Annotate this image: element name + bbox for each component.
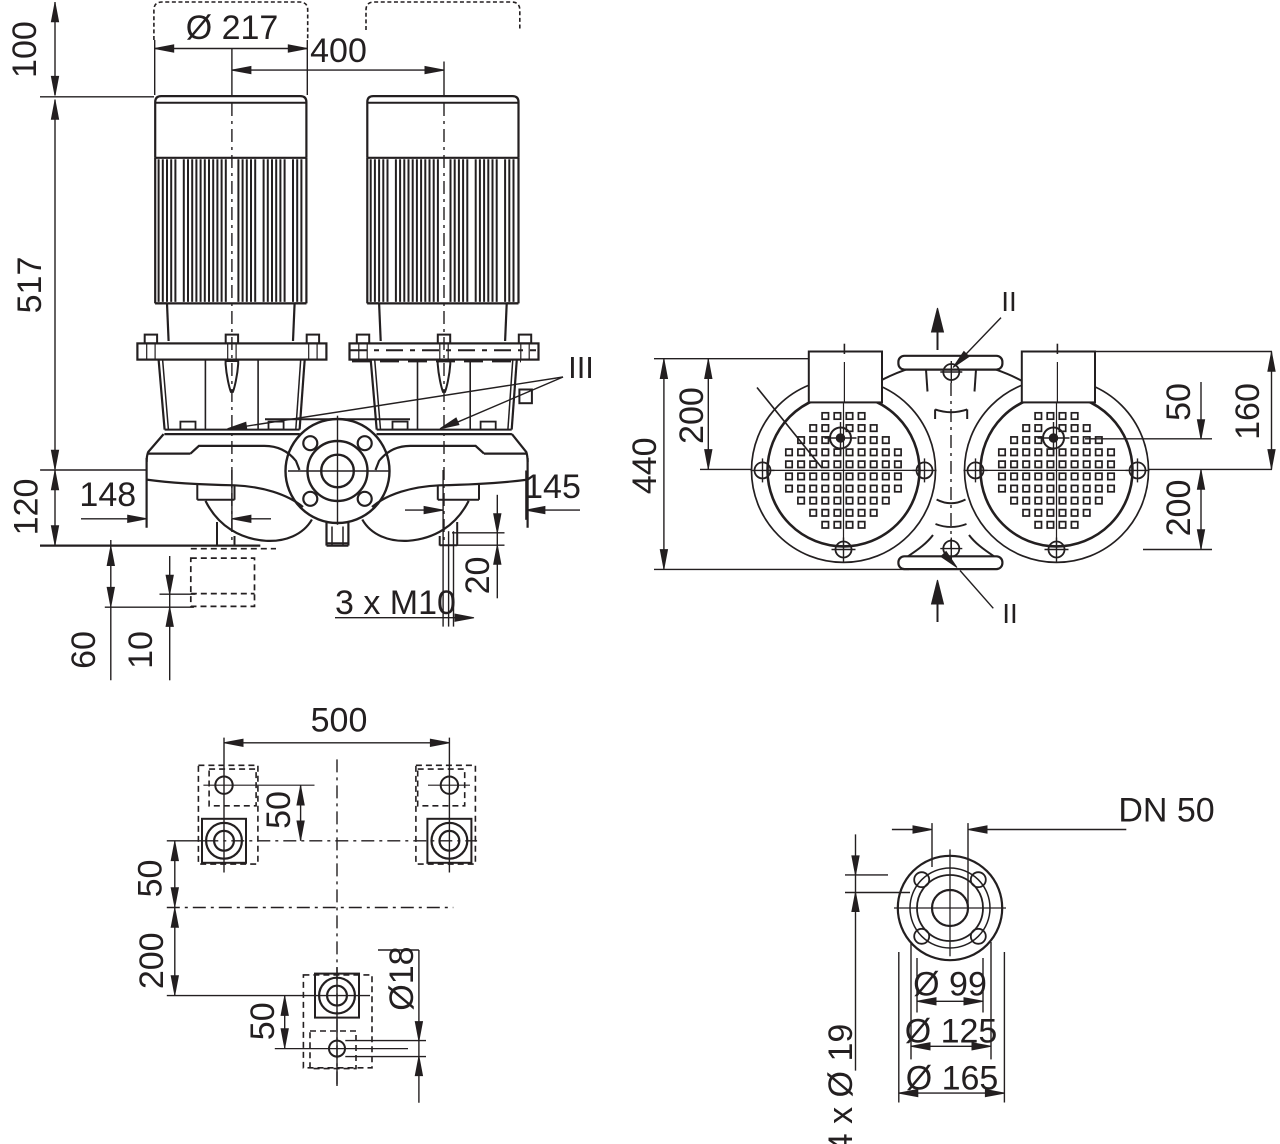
svg-text:50: 50 <box>260 791 298 829</box>
svg-text:Ø18: Ø18 <box>383 946 421 1010</box>
svg-text:Ø 125: Ø 125 <box>905 1013 998 1051</box>
svg-text:50: 50 <box>132 860 170 898</box>
svg-text:20: 20 <box>459 557 497 595</box>
svg-text:148: 148 <box>79 476 136 514</box>
svg-text:100: 100 <box>6 21 44 78</box>
svg-text:160: 160 <box>1229 383 1267 440</box>
svg-text:II: II <box>1001 286 1017 317</box>
svg-text:500: 500 <box>311 702 368 740</box>
svg-text:II: II <box>1002 598 1018 629</box>
svg-text:Ø 99: Ø 99 <box>913 966 987 1004</box>
svg-text:517: 517 <box>11 257 49 314</box>
svg-text:145: 145 <box>524 468 581 506</box>
svg-text:200: 200 <box>1160 480 1198 537</box>
svg-text:200: 200 <box>673 387 711 444</box>
svg-text:120: 120 <box>8 479 46 536</box>
svg-text:Ø 217: Ø 217 <box>186 9 279 47</box>
svg-text:50: 50 <box>244 1002 282 1040</box>
svg-text:200: 200 <box>133 932 171 989</box>
svg-text:400: 400 <box>310 32 367 70</box>
svg-text:Ø 165: Ø 165 <box>906 1059 999 1097</box>
svg-text:III: III <box>568 350 594 385</box>
svg-text:60: 60 <box>65 631 103 669</box>
svg-text:440: 440 <box>626 437 664 494</box>
svg-text:4 x Ø 19: 4 x Ø 19 <box>822 1024 860 1144</box>
svg-text:DN 50: DN 50 <box>1118 791 1214 829</box>
svg-text:50: 50 <box>1160 383 1198 421</box>
svg-text:10: 10 <box>122 631 160 669</box>
svg-text:3 x M10: 3 x M10 <box>335 584 456 622</box>
